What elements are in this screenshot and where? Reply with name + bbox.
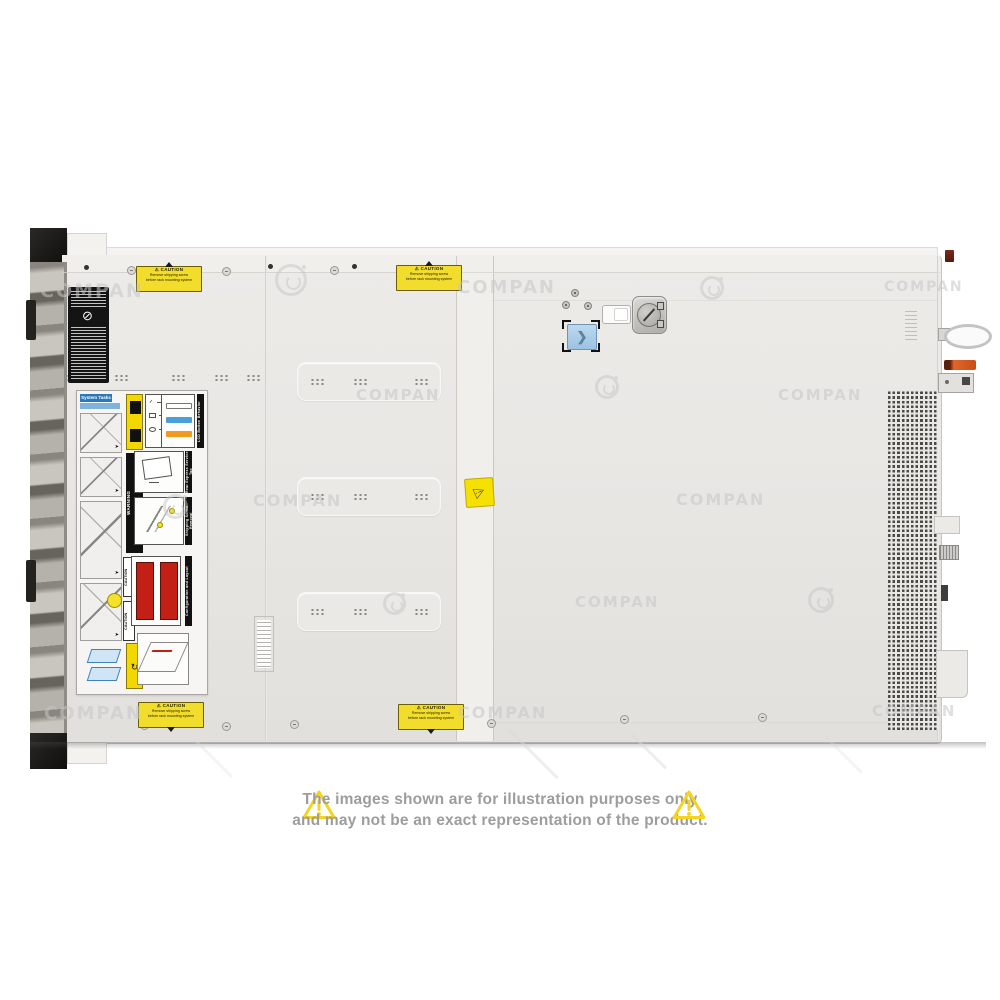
caution-label: ⚠ CAUTION Remove shipping screw before r… bbox=[396, 265, 462, 291]
service-label-header: System Tasks bbox=[80, 394, 112, 402]
orange-release-lever bbox=[944, 360, 976, 370]
screw bbox=[290, 720, 299, 729]
corner-step bbox=[936, 650, 968, 698]
warning-icon: ⚠ bbox=[155, 267, 159, 272]
bezel-latch-dark bbox=[26, 300, 36, 340]
warning-icon: ⚠ bbox=[415, 266, 419, 271]
watermark-logo-icon bbox=[383, 592, 406, 615]
screw bbox=[127, 266, 136, 275]
watermark-logo-icon bbox=[595, 375, 619, 399]
vent-dots bbox=[214, 374, 229, 381]
cover-keylock bbox=[632, 296, 667, 334]
screw bbox=[758, 713, 767, 722]
thumbscrew bbox=[939, 545, 959, 560]
service-label-subheader bbox=[80, 403, 120, 409]
disclaimer-line-1: The images shown are for illustration pu… bbox=[0, 789, 1000, 810]
vent-dots bbox=[246, 374, 261, 381]
label-pointer bbox=[425, 261, 433, 266]
embossed-relief bbox=[297, 477, 441, 516]
diagram-sketch bbox=[80, 413, 122, 453]
serial-sticker bbox=[254, 616, 274, 672]
embossed-relief bbox=[297, 592, 441, 631]
panel-crease bbox=[492, 722, 938, 723]
rivet bbox=[562, 301, 570, 309]
caution-label: ⚠ CAUTION Remove shipping screw before r… bbox=[136, 266, 202, 292]
shipping-screw-pin bbox=[945, 250, 954, 262]
rivet-dark bbox=[352, 264, 357, 269]
label-pointer bbox=[427, 729, 435, 734]
screw bbox=[222, 267, 231, 276]
round-sticker bbox=[107, 593, 122, 608]
screw bbox=[222, 722, 231, 731]
screw bbox=[487, 719, 496, 728]
chassis-shadow bbox=[30, 742, 986, 749]
lock-closed-icon bbox=[657, 302, 664, 310]
warning-triangle-icon: ⚠ bbox=[465, 481, 494, 503]
disclaimer-line-2: and may not be an exact representation o… bbox=[0, 810, 1000, 831]
hazard-sticker: ⚠ bbox=[464, 477, 495, 508]
rear-tag-header: Rear Express Service Tag bbox=[185, 451, 192, 493]
config-layout-header: Configuration and Layout bbox=[185, 556, 192, 626]
chevron-right-icon: ❯ bbox=[577, 329, 588, 344]
screw bbox=[620, 715, 629, 724]
diagram-sketch bbox=[80, 457, 122, 497]
screw bbox=[330, 266, 339, 275]
rivet bbox=[584, 302, 592, 310]
disclaimer-text: The images shown are for illustration pu… bbox=[0, 789, 1000, 832]
watermark-logo-icon bbox=[808, 587, 834, 613]
vent-dots bbox=[114, 374, 129, 381]
panel-crease bbox=[492, 300, 938, 301]
warning-icon: ⚠ bbox=[157, 703, 161, 708]
label-pointer bbox=[167, 727, 175, 732]
rivet-dark bbox=[268, 264, 273, 269]
chassis-sketch-box bbox=[137, 633, 189, 685]
regulatory-label: ⊘ bbox=[68, 287, 109, 383]
pull-ring-handle bbox=[944, 324, 992, 349]
lcd-behavior-header: LCD Button Behavior bbox=[197, 394, 204, 448]
embossed-relief bbox=[297, 362, 441, 401]
diagram-sketch bbox=[80, 583, 122, 641]
bezel-latch-dark bbox=[26, 560, 36, 602]
edge-tab bbox=[934, 516, 960, 534]
watermark-logo-icon bbox=[700, 276, 724, 300]
lock-open-icon bbox=[657, 320, 664, 328]
pinch-hazard-strip bbox=[126, 394, 143, 450]
label-pointer bbox=[165, 262, 173, 267]
blue-diagram bbox=[87, 649, 122, 663]
etched-text bbox=[905, 310, 917, 340]
cover-slide-latch bbox=[602, 305, 631, 324]
vent-grid bbox=[888, 390, 938, 730]
rivet-dark bbox=[84, 265, 89, 270]
cover-release-button: ❯ bbox=[567, 324, 597, 350]
warning-icon: ⚠ bbox=[417, 705, 421, 710]
lcd-behavior-box bbox=[161, 394, 195, 448]
no-symbol-icon: ⊘ bbox=[82, 309, 93, 322]
caution-label: ⚠ CAUTION Remove shipping screw before r… bbox=[398, 704, 464, 730]
blue-diagram bbox=[87, 667, 122, 681]
rear-bracket bbox=[938, 373, 974, 393]
product-photo: ⊘ ⚠ CAUTION Remove shipping screw before… bbox=[0, 0, 1000, 1000]
diagram-sketch bbox=[80, 501, 122, 579]
warning-triangle-icon bbox=[671, 789, 707, 821]
watermark-logo-icon bbox=[163, 494, 188, 519]
vent-dots bbox=[171, 374, 186, 381]
rear-tag-box bbox=[134, 451, 184, 493]
config-layout-box bbox=[131, 556, 181, 626]
rack-ear-bottom bbox=[30, 733, 67, 769]
caution-label: ⚠ CAUTION Remove shipping screw before r… bbox=[138, 702, 204, 728]
rear-slot bbox=[941, 585, 948, 601]
service-instruction-label: System Tasks WARNING CAUTION CAUTION ↻ ✓… bbox=[76, 390, 208, 695]
watermark-logo-icon bbox=[275, 264, 307, 296]
rivet bbox=[571, 289, 579, 297]
check-icon: ✓ bbox=[149, 399, 153, 405]
